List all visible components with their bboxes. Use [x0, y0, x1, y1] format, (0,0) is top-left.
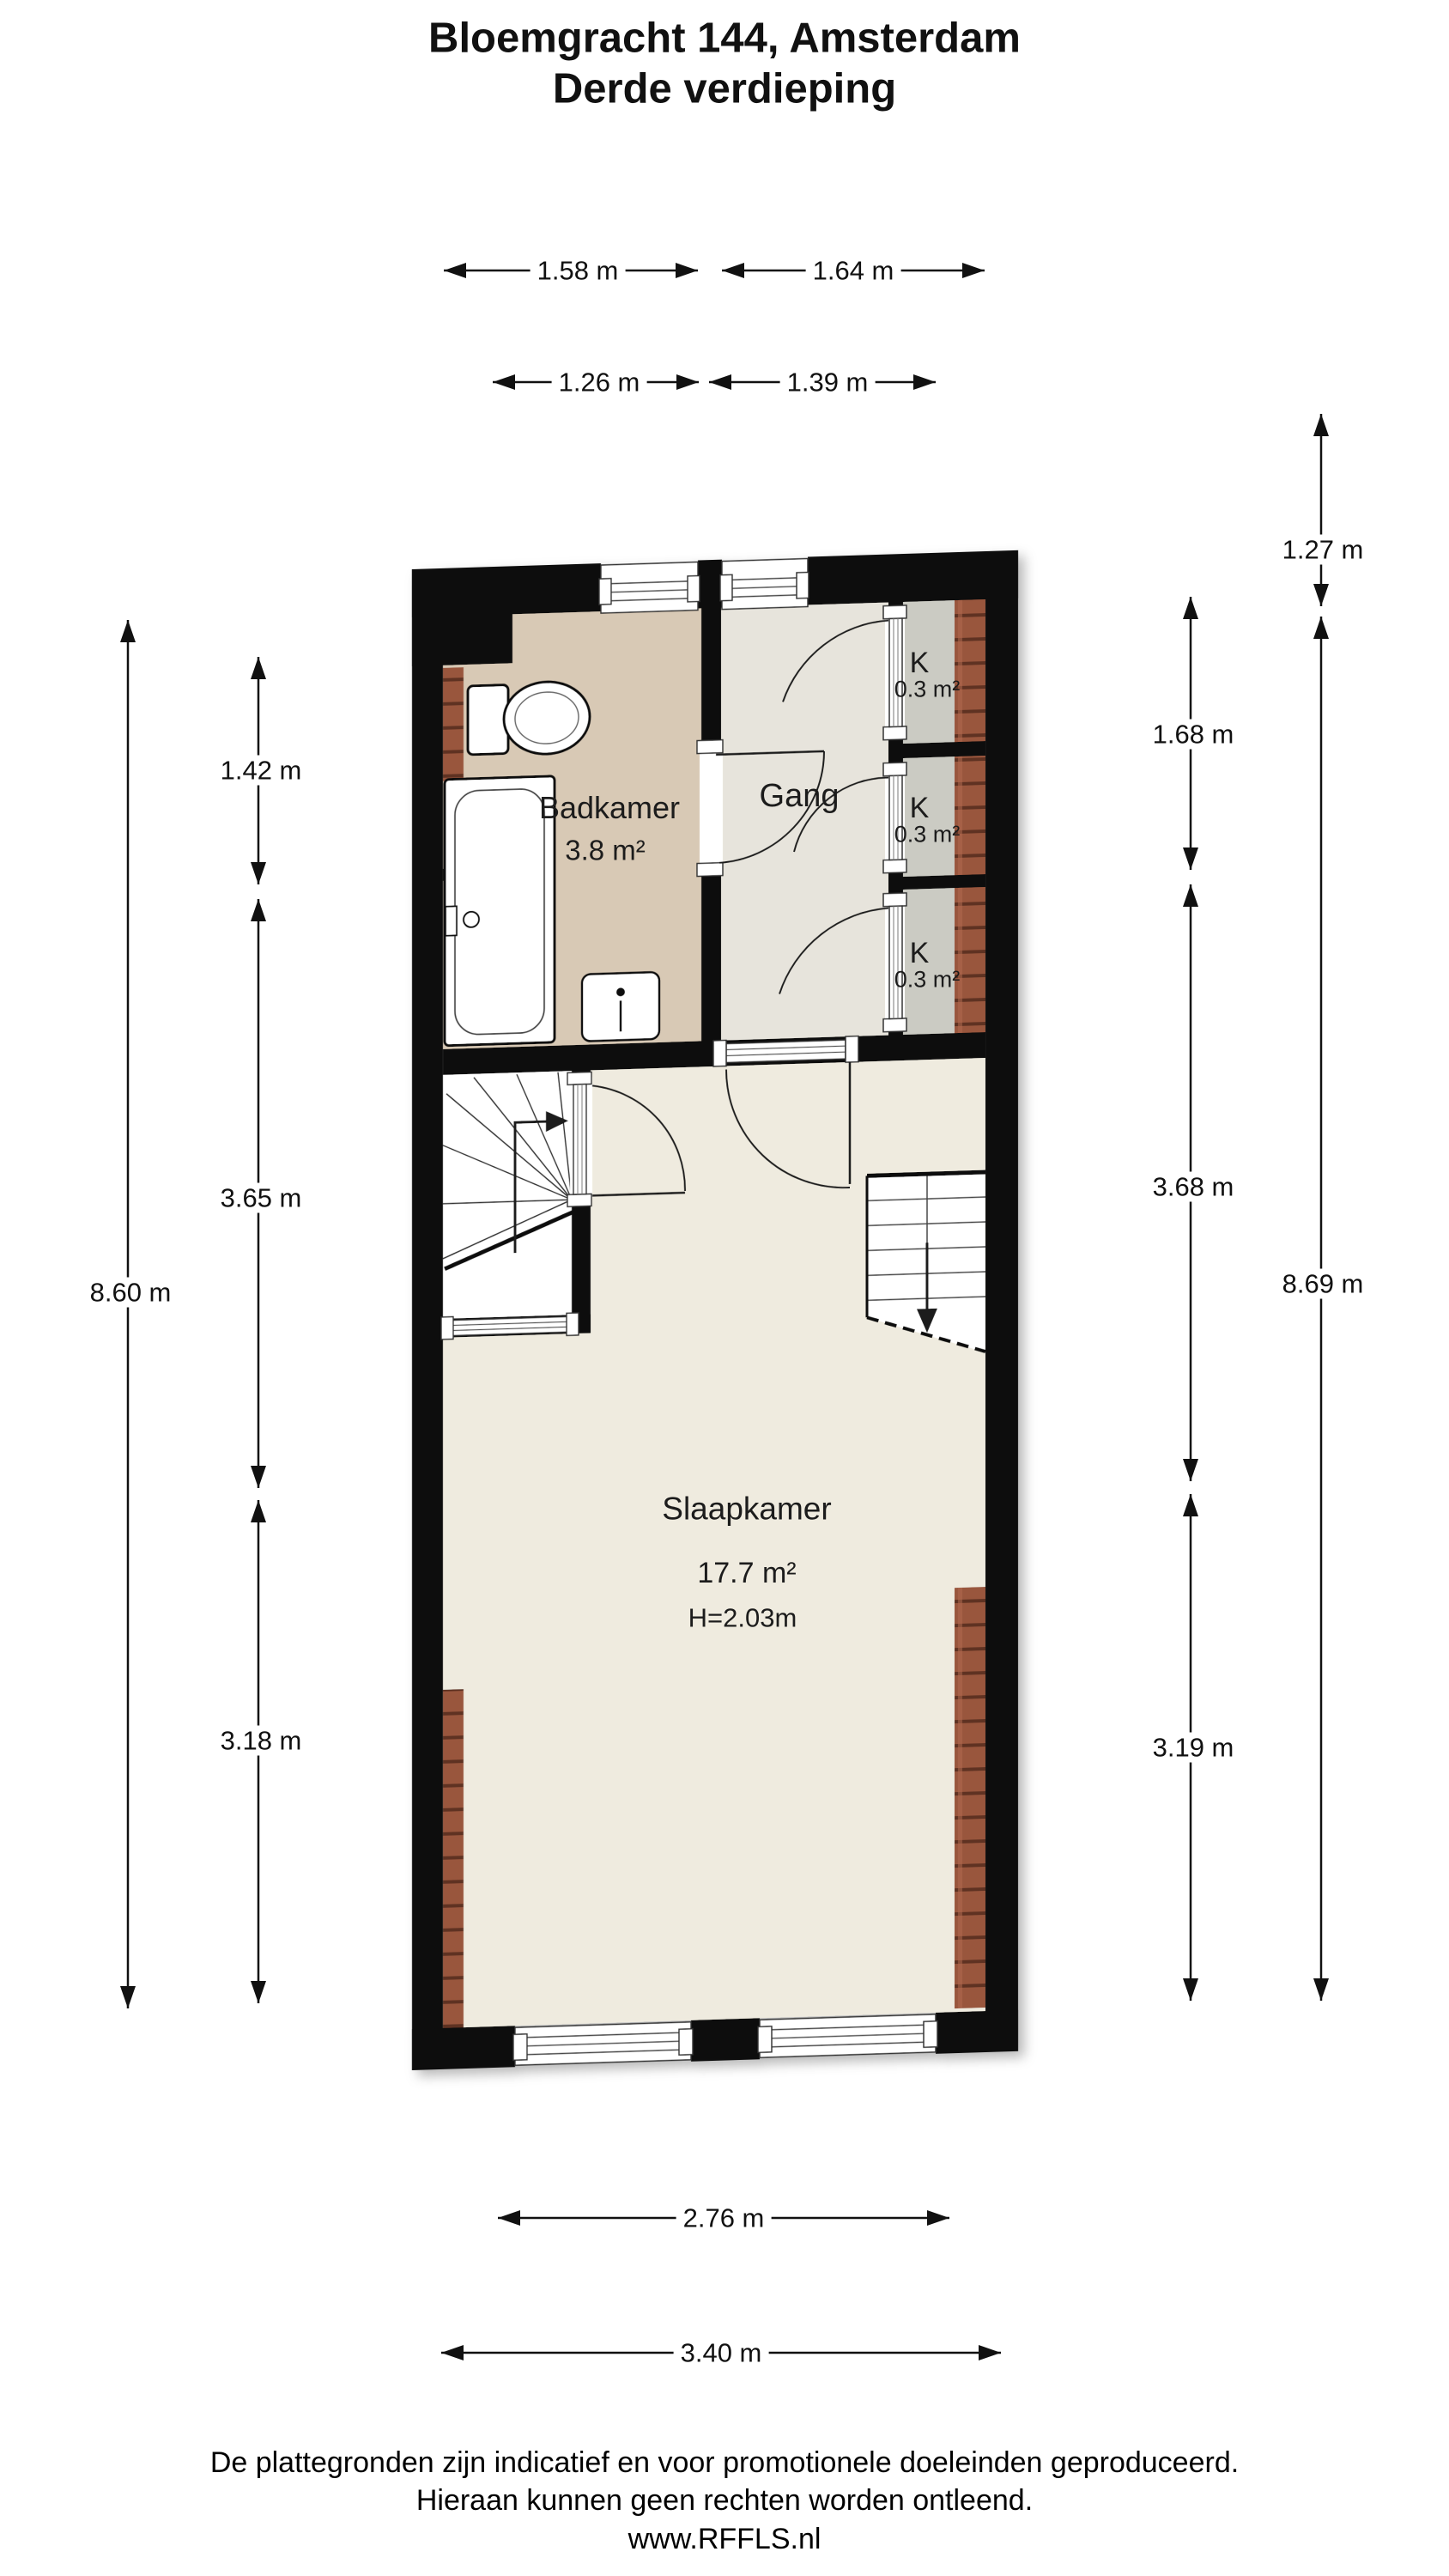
room-area-badkamer: 3.8 m²: [565, 836, 646, 865]
dim-bottom-inner: 2.76 m: [676, 2203, 772, 2233]
room-area-slaapkamer: 17.7 m²: [697, 1558, 796, 1588]
dim-top-outer-right: 1.64 m: [806, 256, 901, 286]
window-top-left: [599, 562, 700, 613]
dim-left-inner-2: 3.65 m: [214, 1183, 309, 1213]
dim-right-outer: 8.69 m: [1276, 1269, 1371, 1299]
room-label-closet-3: K: [910, 939, 930, 968]
window-top-right: [720, 558, 809, 609]
toilet-icon: [468, 680, 590, 756]
dim-right-outer-upper: 1.27 m: [1276, 535, 1371, 565]
room-area-closet-1: 0.3 m²: [894, 678, 961, 702]
dim-left-outer: 8.60 m: [83, 1278, 179, 1308]
dim-top-inner-right: 1.39 m: [780, 368, 876, 398]
dim-top-inner-left: 1.26 m: [552, 368, 647, 398]
room-label-gang: Gang: [760, 780, 840, 812]
sink-icon: [582, 972, 659, 1042]
room-label-badkamer: Badkamer: [539, 793, 680, 823]
page-title-address: Bloemgracht 144, Amsterdam: [428, 18, 1021, 60]
window-bottom-right: [758, 2014, 937, 2058]
floor-plan-svg: [0, 0, 1449, 2576]
dim-top-outer-left: 1.58 m: [530, 256, 626, 286]
room-label-closet-2: K: [910, 793, 930, 823]
dim-left-inner-1: 1.42 m: [214, 756, 309, 786]
room-area-closet-2: 0.3 m²: [894, 823, 961, 847]
floor-plan: [412, 550, 1018, 2070]
window-bottom-left: [513, 2022, 693, 2066]
dim-right-inner-1: 1.68 m: [1146, 720, 1241, 750]
room-area-closet-3: 0.3 m²: [894, 969, 961, 992]
room-label-closet-1: K: [910, 648, 930, 677]
footer-disclaimer-1: De plattegronden zijn indicatief en voor…: [210, 2448, 1239, 2477]
page-title-floor: Derde verdieping: [553, 69, 896, 111]
bathtub-icon: [445, 776, 555, 1046]
footer-website: www.RFFLS.nl: [628, 2524, 822, 2554]
dim-right-inner-2: 3.68 m: [1146, 1172, 1241, 1202]
dim-left-inner-3: 3.18 m: [214, 1726, 309, 1756]
room-label-slaapkamer: Slaapkamer: [662, 1493, 831, 1525]
room-height-slaapkamer: H=2.03m: [688, 1605, 797, 1631]
footer-disclaimer-2: Hieraan kunnen geen rechten worden ontle…: [416, 2486, 1033, 2515]
dim-right-inner-3: 3.19 m: [1146, 1733, 1241, 1763]
dim-bottom-outer: 3.40 m: [674, 2338, 769, 2368]
floorplan-page: { "title": { "line1": "Bloemgracht 144, …: [0, 0, 1449, 2576]
